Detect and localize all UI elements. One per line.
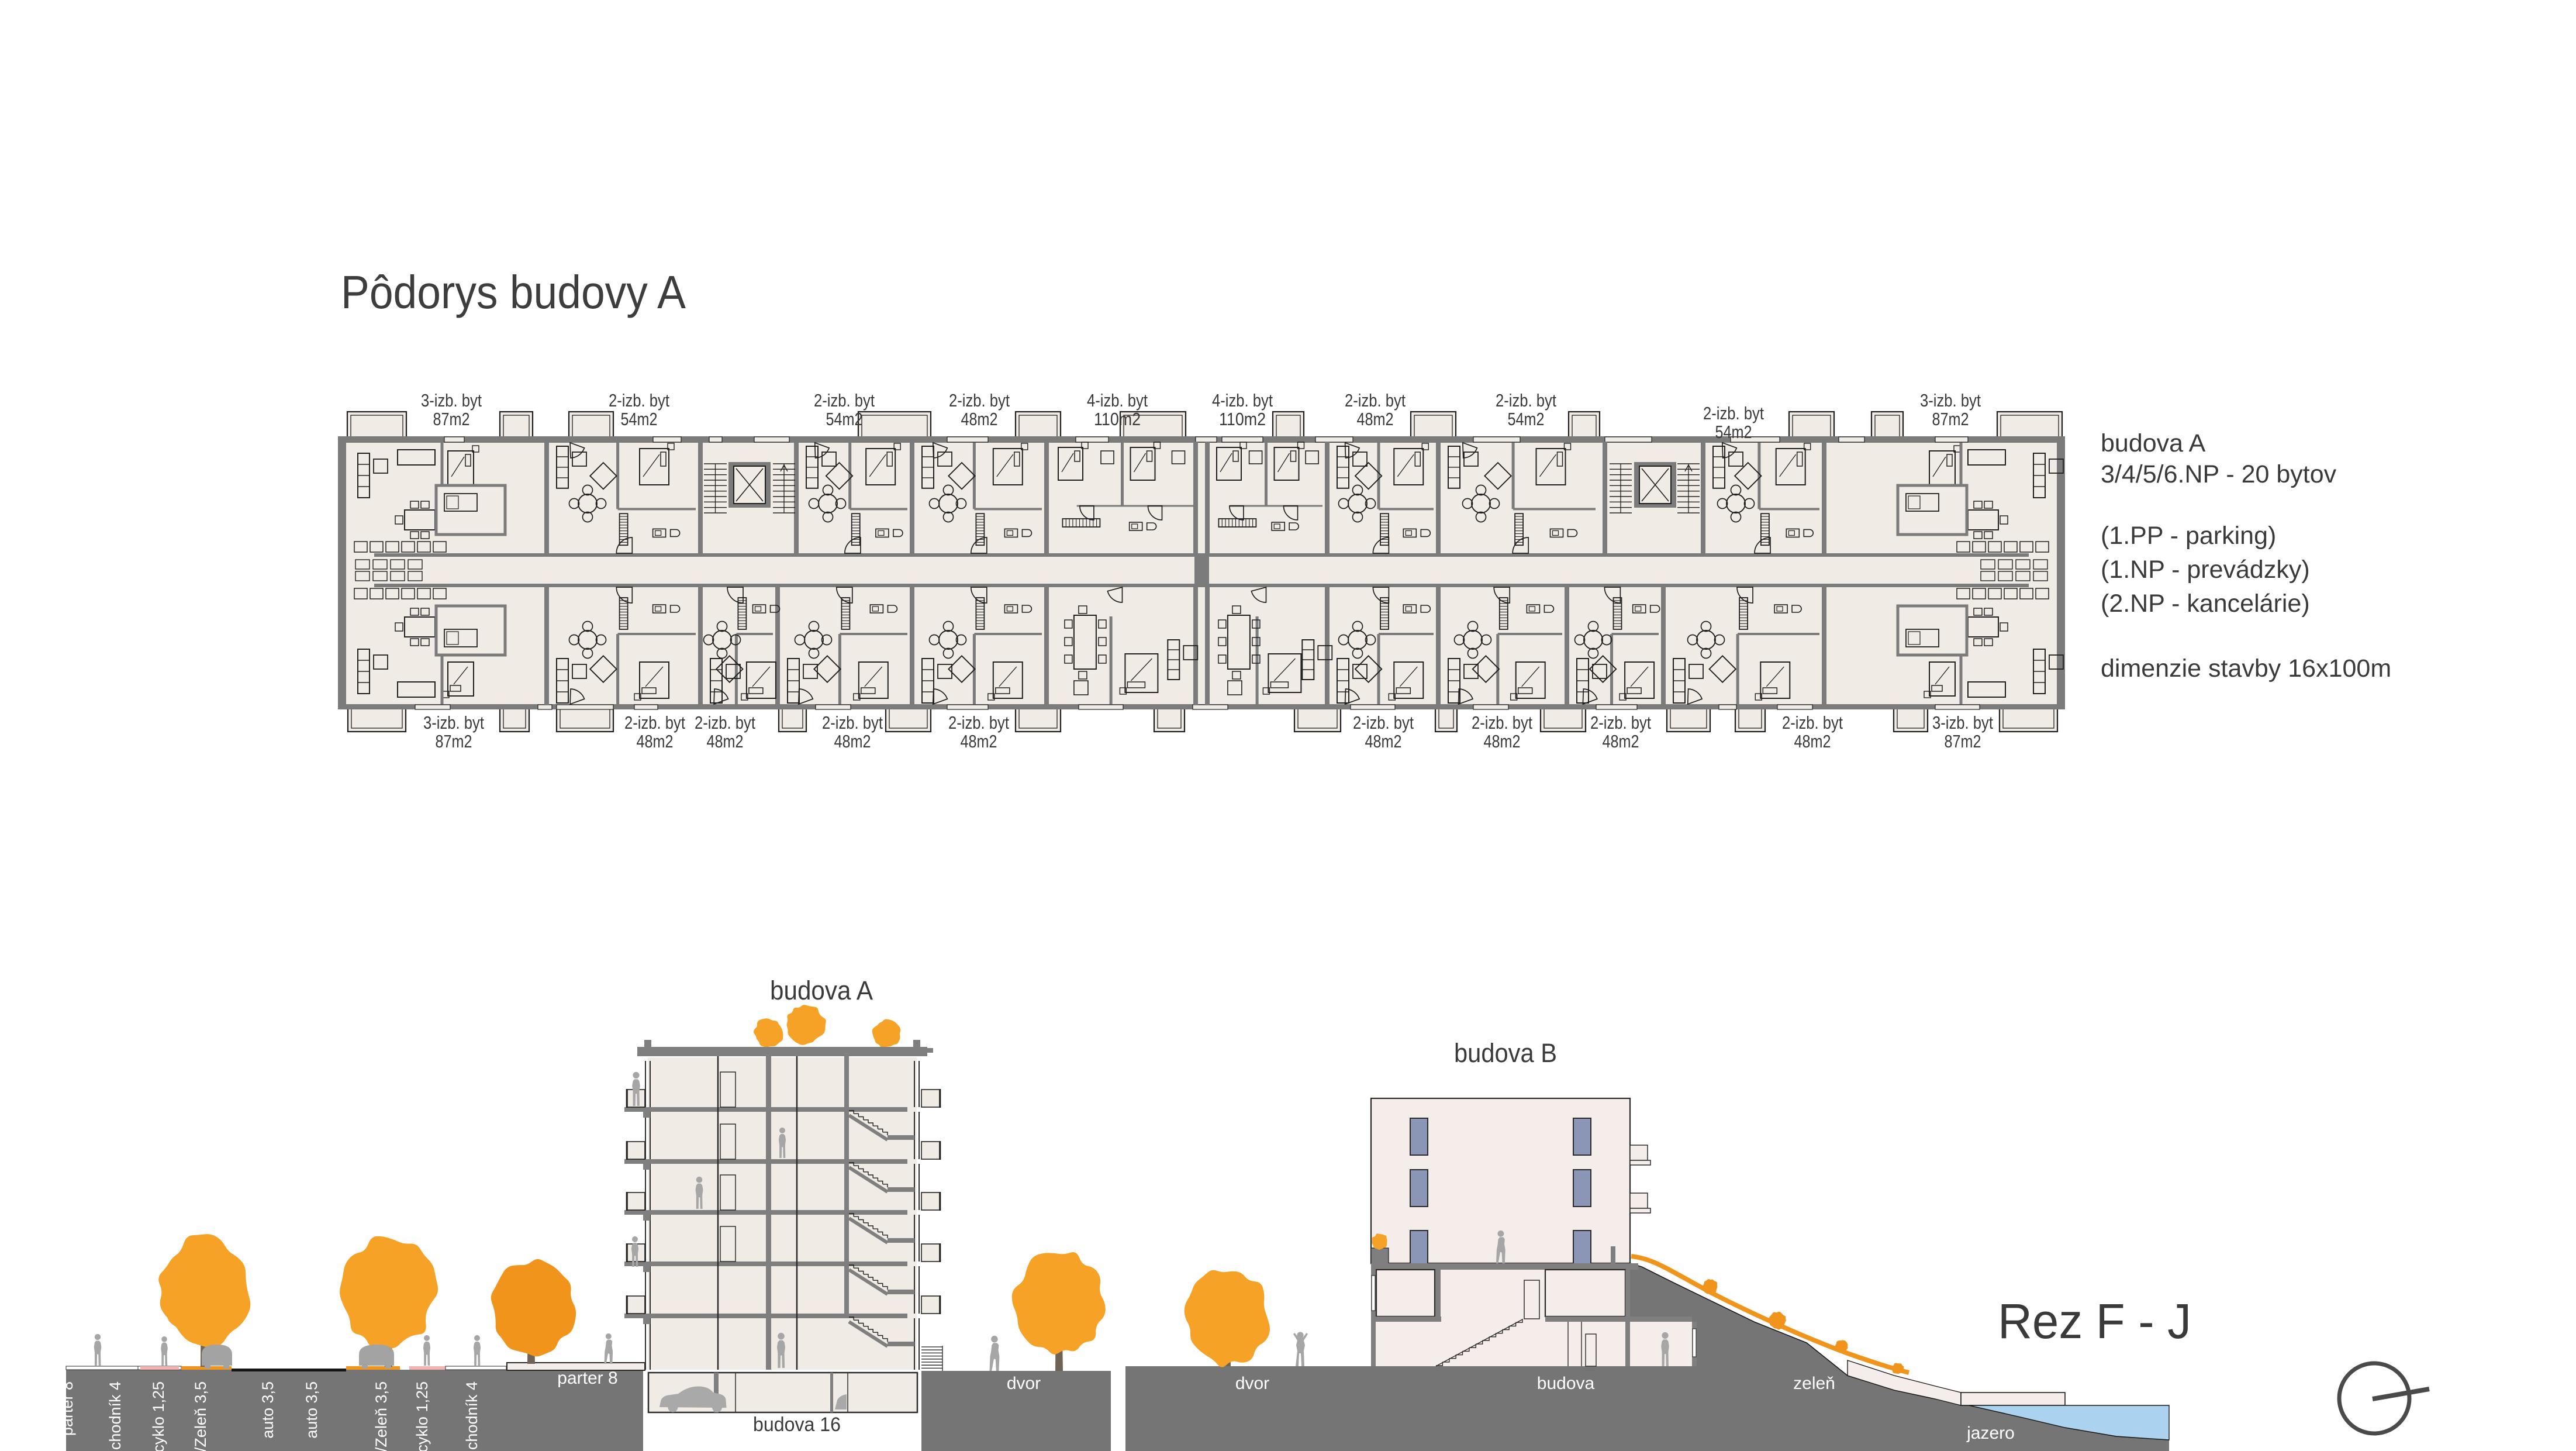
- svg-text:parter 8: parter 8: [58, 1381, 76, 1436]
- svg-text:budova: budova: [1537, 1374, 1595, 1393]
- svg-text:(1.NP - prevádzky): (1.NP - prevádzky): [2101, 556, 2310, 584]
- svg-text:48m2: 48m2: [961, 409, 998, 429]
- svg-text:54m2: 54m2: [621, 409, 658, 429]
- svg-text:3-izb. byt: 3-izb. byt: [423, 712, 484, 733]
- svg-text:48m2: 48m2: [1357, 409, 1394, 429]
- svg-text:budova A: budova A: [770, 976, 873, 1005]
- svg-text:budova A: budova A: [2101, 429, 2206, 457]
- svg-text:4-izb. byt: 4-izb. byt: [1087, 390, 1148, 411]
- svg-text:auto 3,5: auto 3,5: [259, 1381, 277, 1439]
- svg-text:2-izb. byt: 2-izb. byt: [624, 712, 685, 733]
- svg-text:48m2: 48m2: [1365, 731, 1402, 752]
- svg-text:54m2: 54m2: [1508, 409, 1545, 429]
- svg-text:87m2: 87m2: [1932, 409, 1969, 429]
- svg-text:3-izb. byt: 3-izb. byt: [1920, 390, 1981, 411]
- svg-text:cyklo 1,25: cyklo 1,25: [150, 1381, 167, 1451]
- svg-text:2-izb. byt: 2-izb. byt: [695, 712, 755, 733]
- svg-text:zeleň: zeleň: [1793, 1374, 1835, 1393]
- svg-text:cyklo 1,25: cyklo 1,25: [413, 1381, 431, 1451]
- svg-text:chodník 4: chodník 4: [463, 1381, 481, 1450]
- svg-text:110m2: 110m2: [1219, 409, 1266, 429]
- svg-text:2-izb. byt: 2-izb. byt: [1345, 390, 1406, 411]
- svg-text:(2.NP - kancelárie): (2.NP - kancelárie): [2101, 590, 2310, 618]
- svg-text:2-izb. byt: 2-izb. byt: [948, 712, 1009, 733]
- svg-text:(1.PP - parking): (1.PP - parking): [2101, 522, 2276, 550]
- svg-text:dimenzie stavby 16x100m: dimenzie stavby 16x100m: [2101, 654, 2391, 683]
- svg-text:2-izb. byt: 2-izb. byt: [1703, 403, 1764, 423]
- svg-text:48m2: 48m2: [637, 731, 674, 752]
- svg-text:48m2: 48m2: [1603, 731, 1639, 752]
- svg-text:48m2: 48m2: [961, 731, 997, 752]
- svg-text:auto 3,5: auto 3,5: [303, 1381, 320, 1439]
- svg-text:jazero: jazero: [1966, 1424, 2015, 1443]
- svg-text:48m2: 48m2: [1794, 731, 1831, 752]
- svg-text:3/4/5/6.NP - 20 bytov: 3/4/5/6.NP - 20 bytov: [2101, 460, 2337, 488]
- svg-text:3-izb. byt: 3-izb. byt: [1932, 712, 1993, 733]
- svg-text:110m2: 110m2: [1094, 409, 1141, 429]
- svg-text:dvor: dvor: [1007, 1374, 1041, 1393]
- svg-text:Rez F - J: Rez F - J: [1998, 1294, 2191, 1349]
- svg-text:2-izb. byt: 2-izb. byt: [1590, 712, 1651, 733]
- svg-text:P/Zeleň 3,5: P/Zeleň 3,5: [192, 1381, 209, 1451]
- svg-text:48m2: 48m2: [707, 731, 744, 752]
- svg-text:2-izb. byt: 2-izb. byt: [822, 712, 883, 733]
- svg-text:P/Zeleň 3,5: P/Zeleň 3,5: [372, 1381, 390, 1451]
- svg-text:budova B: budova B: [1454, 1038, 1557, 1068]
- svg-text:87m2: 87m2: [1945, 731, 1981, 752]
- svg-text:budova 16: budova 16: [753, 1414, 841, 1436]
- svg-text:dvor: dvor: [1235, 1374, 1269, 1393]
- svg-text:87m2: 87m2: [436, 731, 472, 752]
- svg-text:3-izb. byt: 3-izb. byt: [421, 390, 482, 411]
- svg-text:4-izb. byt: 4-izb. byt: [1212, 390, 1273, 411]
- svg-text:2-izb. byt: 2-izb. byt: [949, 390, 1010, 411]
- svg-text:2-izb. byt: 2-izb. byt: [1353, 712, 1414, 733]
- svg-text:54m2: 54m2: [826, 409, 863, 429]
- svg-text:2-izb. byt: 2-izb. byt: [1472, 712, 1532, 733]
- svg-text:chodník 4: chodník 4: [106, 1381, 124, 1450]
- svg-text:54m2: 54m2: [1715, 422, 1752, 442]
- svg-text:parter 8: parter 8: [557, 1369, 617, 1388]
- svg-text:Pôdorys budovy A: Pôdorys budovy A: [341, 266, 686, 318]
- svg-text:2-izb. byt: 2-izb. byt: [609, 390, 669, 411]
- svg-text:87m2: 87m2: [433, 409, 470, 429]
- svg-text:2-izb. byt: 2-izb. byt: [1782, 712, 1843, 733]
- svg-text:48m2: 48m2: [834, 731, 871, 752]
- svg-text:2-izb. byt: 2-izb. byt: [814, 390, 875, 411]
- svg-text:48m2: 48m2: [1484, 731, 1521, 752]
- svg-text:2-izb. byt: 2-izb. byt: [1496, 390, 1556, 411]
